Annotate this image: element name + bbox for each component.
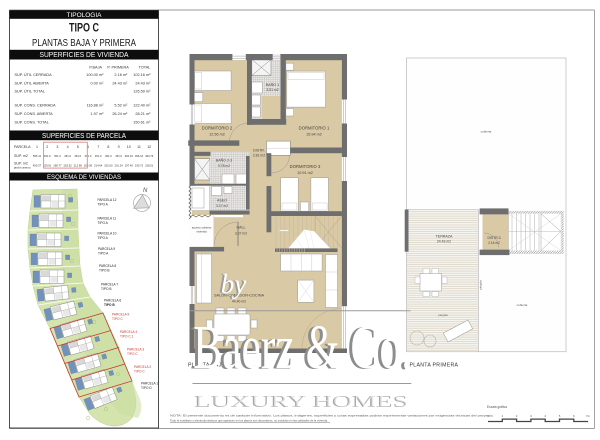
svg-text:PARCELA 8: PARCELA 8 (99, 264, 116, 268)
svg-text:TIPO C: TIPO C (112, 317, 123, 321)
svg-text:3.37 m2: 3.37 m2 (216, 204, 228, 208)
svg-text:DISTR.: DISTR. (253, 149, 265, 153)
svg-text:PARCELA 11: PARCELA 11 (98, 217, 117, 221)
svg-text:396.16: 396.16 (135, 154, 144, 158)
svg-text:451.0: 451.0 (44, 154, 51, 158)
svg-text:0.00 m²: 0.00 m² (91, 81, 105, 85)
svg-text:150.61 m²: 150.61 m² (133, 121, 151, 125)
svg-text:3: 3 (56, 145, 58, 149)
svg-text:DISTR.3: DISTR.3 (488, 236, 501, 240)
svg-text:5: 5 (77, 145, 79, 149)
svg-text:5.52 m²: 5.52 m² (114, 104, 128, 108)
svg-text:212.86: 212.86 (74, 164, 83, 168)
svg-text:SUP. ÚTIL TOTAL: SUP. ÚTIL TOTAL (15, 89, 45, 94)
svg-text:2: 2 (46, 145, 48, 149)
svg-text:190.72: 190.72 (135, 164, 144, 168)
svg-text:TERRAZA: TERRAZA (436, 235, 453, 239)
svg-text:TIPO C.1: TIPO C.1 (120, 335, 134, 339)
svg-text:SUP. CONS. CERRADA: SUP. CONS. CERRADA (15, 104, 57, 108)
svg-text:7m: 7m (586, 414, 591, 418)
svg-text:1: 1 (36, 145, 38, 149)
svg-text:TOTAL: TOTAL (139, 66, 151, 70)
svg-text:28.21 m²: 28.21 m² (135, 112, 151, 116)
svg-text:TIPO C: TIPO C (134, 370, 145, 374)
svg-text:2.81 m2: 2.81 m2 (253, 154, 265, 158)
svg-text:PARCELA 5: PARCELA 5 (112, 313, 129, 317)
svg-text:122.40 m²: 122.40 m² (133, 104, 151, 108)
svg-text:3.51 m2: 3.51 m2 (266, 88, 278, 92)
svg-text:229.91: 229.91 (43, 164, 52, 168)
svg-text:P.BAJA: P.BAJA (89, 66, 102, 70)
svg-text:DORMITORIO 1: DORMITORIO 1 (299, 126, 330, 131)
svg-text:100.00 m²: 100.00 m² (86, 73, 104, 77)
svg-text:TIPO D: TIPO D (141, 386, 152, 390)
svg-text:PARCELA 12: PARCELA 12 (98, 198, 117, 202)
svg-text:DORMITORIO 3: DORMITORIO 3 (290, 164, 321, 169)
svg-text:SUP. ÚTIL ABIERTA: SUP. ÚTIL ABIERTA (15, 80, 50, 85)
svg-text:126.59 m²: 126.59 m² (133, 90, 151, 94)
svg-text:24.43 m2: 24.43 m2 (437, 240, 451, 244)
svg-text:P. PRIMERA: P. PRIMERA (107, 66, 129, 70)
svg-text:451.0: 451.0 (115, 154, 122, 158)
svg-text:TIPO A: TIPO A (98, 221, 109, 225)
svg-text:PARCELA 3: PARCELA 3 (127, 348, 144, 352)
svg-text:ASEO: ASEO (217, 199, 227, 203)
svg-text:15.94 m2: 15.94 m2 (306, 133, 322, 137)
svg-text:PARCELA 10: PARCELA 10 (98, 232, 117, 236)
svg-text:44.40 m2: 44.40 m2 (232, 300, 246, 304)
svg-text:214.64: 214.64 (94, 164, 103, 168)
svg-text:NOTA: El presente documento es: NOTA: El presente documento es de caráct… (170, 414, 494, 418)
svg-text:Todo el mobiliario y electrodo: Todo el mobiliario y electrodomésticos q… (170, 419, 328, 423)
svg-text:TIPO B: TIPO B (99, 269, 109, 273)
svg-text:SUP. m2: SUP. m2 (14, 154, 28, 158)
svg-text:N: N (143, 188, 148, 194)
svg-text:451.0: 451.0 (105, 154, 112, 158)
svg-text:by: by (221, 269, 247, 299)
svg-text:9: 9 (118, 145, 120, 149)
svg-text:TIPO B: TIPO B (101, 287, 111, 291)
svg-text:SUPERFICIES DE PARCELA: SUPERFICIES DE PARCELA (42, 131, 126, 140)
svg-text:116.88 m²: 116.88 m² (87, 104, 105, 108)
svg-text:DORMITORIO 2: DORMITORIO 2 (202, 126, 233, 131)
svg-text:TIPO C: TIPO C (69, 22, 99, 34)
svg-text:450.37: 450.37 (33, 164, 42, 168)
svg-text:ESQUEMA DE VIVIENDAS: ESQUEMA DE VIVIENDAS (47, 174, 121, 181)
svg-text:463.76: 463.76 (145, 154, 154, 158)
svg-text:pérgola: pérgola (479, 280, 483, 290)
svg-text:201.24: 201.24 (114, 164, 123, 168)
svg-text:Escala gráfica: Escala gráfica (487, 405, 507, 409)
svg-text:pérgola: pérgola (438, 313, 448, 317)
svg-text:2.16 m2: 2.16 m2 (488, 241, 500, 245)
svg-text:218.52: 218.52 (63, 164, 72, 168)
svg-text:TIPO B: TIPO B (104, 303, 115, 307)
svg-text:PLANTAS BAJA Y PRIMERA: PLANTAS BAJA Y PRIMERA (32, 38, 136, 49)
svg-text:24.43 m²: 24.43 m² (135, 81, 151, 85)
svg-text:PARCELA 7: PARCELA 7 (101, 283, 118, 287)
svg-text:3.37 m2: 3.37 m2 (235, 232, 247, 236)
svg-text:394.16: 394.16 (125, 154, 134, 158)
svg-text:PARCELA 1: PARCELA 1 (141, 382, 158, 386)
svg-text:SUPERFICIES DE VIVIENDA: SUPERFICIES DE VIVIENDA (40, 50, 129, 59)
svg-text:205.06: 205.06 (84, 164, 93, 168)
svg-text:10: 10 (127, 145, 131, 149)
svg-text:12: 12 (147, 145, 151, 149)
svg-text:SUP. CONS. TOTAL: SUP. CONS. TOTAL (15, 121, 49, 125)
svg-text:SUP. ÚTIL CERRADA: SUP. ÚTIL CERRADA (15, 72, 53, 77)
svg-text:jardín anexo: jardín anexo (13, 166, 31, 170)
svg-text:197.40: 197.40 (125, 164, 134, 168)
svg-text:228.51: 228.51 (145, 164, 154, 168)
svg-text:vivienda: vivienda (196, 230, 207, 234)
svg-text:SUP. CONS. ABIERTA: SUP. CONS. ABIERTA (15, 112, 54, 116)
svg-text:198.77: 198.77 (53, 164, 62, 168)
svg-text:TIPO C: TIPO C (127, 352, 138, 356)
svg-text:PLANTA PRIMERA: PLANTA PRIMERA (410, 363, 459, 369)
svg-text:11: 11 (137, 145, 141, 149)
svg-text:451.0: 451.0 (74, 154, 81, 158)
svg-text:451.0: 451.0 (85, 154, 92, 158)
svg-text:2.16 m²: 2.16 m² (114, 73, 128, 77)
svg-text:3.78 m2: 3.78 m2 (218, 164, 230, 168)
svg-text:4: 4 (67, 145, 69, 149)
svg-text:cubierta: cubierta (481, 130, 492, 134)
svg-text:PARCELA 4: PARCELA 4 (120, 330, 137, 334)
svg-text:451.0: 451.0 (95, 154, 102, 158)
svg-text:PARCELA: PARCELA (14, 145, 31, 149)
svg-text:26.24 m²: 26.24 m² (112, 112, 128, 116)
svg-text:TIPO A: TIPO A (98, 252, 109, 256)
svg-text:PARCELA 2: PARCELA 2 (134, 365, 151, 369)
svg-text:555.41: 555.41 (33, 154, 42, 158)
svg-text:BAÑO 1: BAÑO 1 (266, 82, 279, 87)
svg-text:8: 8 (107, 145, 109, 149)
svg-text:202.60: 202.60 (104, 164, 113, 168)
svg-text:12.56 m2: 12.56 m2 (209, 133, 225, 137)
svg-text:PARCELA 9: PARCELA 9 (98, 247, 115, 251)
svg-text:24.43 m²: 24.43 m² (112, 81, 128, 85)
svg-text:451.0: 451.0 (54, 154, 61, 158)
svg-text:TIPOLOGIA: TIPOLOGIA (67, 12, 103, 19)
svg-text:7: 7 (97, 145, 99, 149)
svg-text:BAÑO 2-3: BAÑO 2-3 (216, 158, 232, 163)
svg-text:1.97 m²: 1.97 m² (91, 112, 105, 116)
svg-text:Baerz & Co.: Baerz & Co. (193, 314, 412, 382)
svg-text:10.91 m2: 10.91 m2 (297, 171, 313, 175)
svg-text:TIPO A: TIPO A (98, 203, 109, 207)
svg-text:LUXURY HOMES: LUXURY HOMES (195, 392, 409, 411)
svg-text:cubierta: cubierta (517, 303, 528, 307)
svg-text:451.0: 451.0 (64, 154, 71, 158)
svg-text:TIPO A: TIPO A (98, 236, 109, 240)
svg-text:PARCELA 6: PARCELA 6 (104, 299, 121, 303)
svg-text:102.16 m²: 102.16 m² (133, 73, 151, 77)
